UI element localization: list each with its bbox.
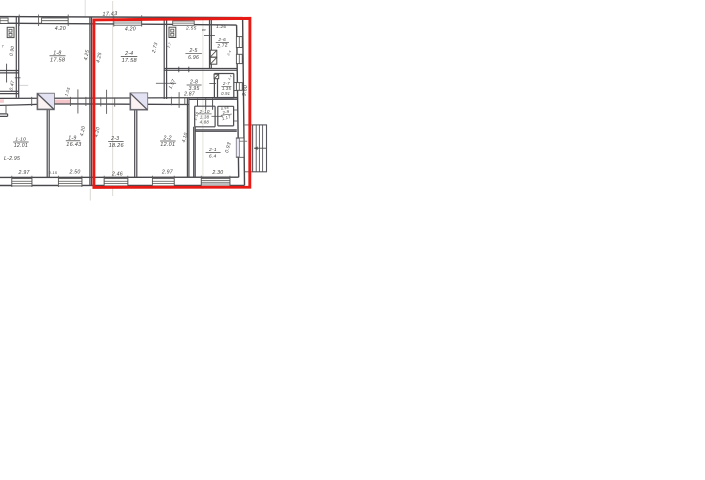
svg-text:2.87: 2.87 [183, 92, 195, 98]
svg-text:17.58: 17.58 [122, 58, 138, 64]
svg-text:2.55: 2.55 [185, 26, 197, 32]
svg-text:2-4: 2-4 [124, 51, 133, 57]
svg-text:2-5: 2-5 [188, 48, 197, 54]
svg-text:18.26: 18.26 [109, 143, 125, 149]
svg-text:12.01: 12.01 [160, 142, 175, 148]
svg-text:2.46: 2.46 [111, 171, 123, 177]
svg-text:2-8: 2-8 [189, 79, 198, 85]
svg-text:1.26: 1.26 [216, 24, 226, 29]
svg-text:L-2.95: L-2.95 [4, 156, 20, 162]
svg-text:2-1: 2-1 [208, 147, 217, 153]
svg-text:6.4: 6.4 [209, 154, 217, 160]
svg-text:4.20: 4.20 [125, 26, 136, 32]
svg-text:0.15: 0.15 [49, 170, 58, 175]
svg-text:2.30: 2.30 [211, 170, 223, 176]
svg-text:1.38: 1.38 [200, 114, 210, 119]
svg-text:2-6: 2-6 [217, 37, 226, 42]
svg-text:2.97: 2.97 [161, 169, 174, 175]
svg-text:4.20: 4.20 [55, 26, 66, 32]
svg-text:0.91: 0.91 [221, 91, 230, 96]
svg-text:2-10: 2-10 [198, 109, 209, 114]
svg-text:2.50: 2.50 [68, 170, 80, 176]
svg-text:4.88: 4.88 [200, 120, 210, 125]
svg-text:6.96: 6.96 [188, 55, 199, 61]
svg-text:2.97: 2.97 [18, 170, 31, 176]
svg-text:17.43: 17.43 [102, 11, 118, 18]
svg-text:вс: вс [202, 28, 206, 32]
svg-text:17.58: 17.58 [50, 58, 66, 64]
svg-text:16.43: 16.43 [66, 142, 82, 148]
svg-text:12.01: 12.01 [14, 143, 28, 149]
